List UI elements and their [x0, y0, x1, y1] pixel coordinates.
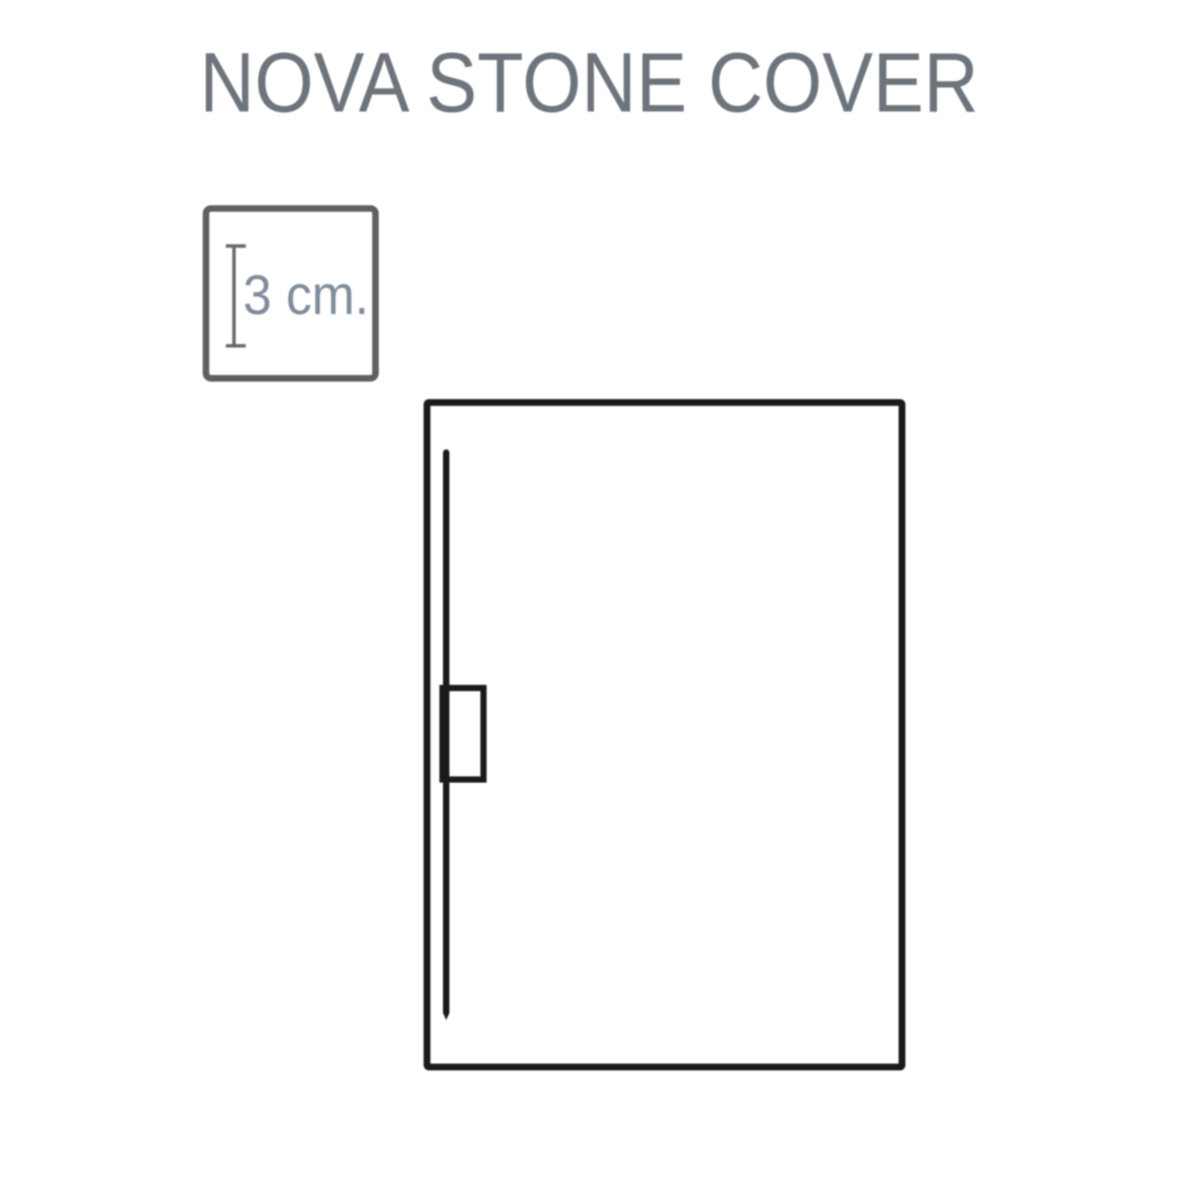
svg-text:NOVA STONE COVER: NOVA STONE COVER	[200, 36, 979, 130]
svg-text:3 cm.: 3 cm.	[243, 263, 369, 326]
